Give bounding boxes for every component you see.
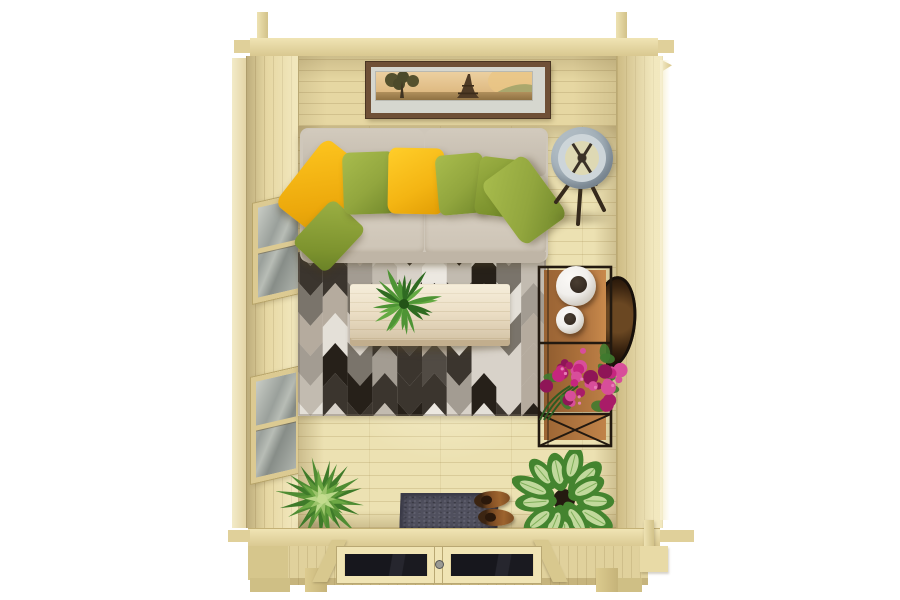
- vase-large-opening: [570, 276, 587, 293]
- double-doors: [336, 546, 540, 582]
- vase-small-opening: [564, 313, 576, 325]
- door-left: [336, 546, 436, 584]
- door-right: [442, 546, 542, 584]
- front-corner-block-left: [248, 546, 288, 580]
- scene-render: [0, 0, 900, 600]
- eiffel-print: [375, 71, 533, 101]
- front-beam-end-right: [660, 530, 694, 542]
- flower-plant: [538, 342, 630, 426]
- front-post-right: [596, 568, 618, 592]
- front-wall-beam: [248, 528, 660, 547]
- front-beam-end-left: [228, 530, 250, 542]
- picture-frame: [366, 62, 550, 118]
- fern-plant: [360, 268, 448, 344]
- door-handle: [435, 560, 444, 569]
- top-wall-beam: [250, 38, 658, 57]
- front-foot-left: [250, 578, 290, 592]
- door-left-glass: [345, 554, 427, 576]
- lamp-shade-hole: [565, 141, 599, 175]
- door-right-glass: [451, 554, 533, 576]
- right-wall-outer-edge: [660, 60, 670, 520]
- roof-beam-end-right: [656, 40, 674, 53]
- front-step-right: [640, 546, 668, 572]
